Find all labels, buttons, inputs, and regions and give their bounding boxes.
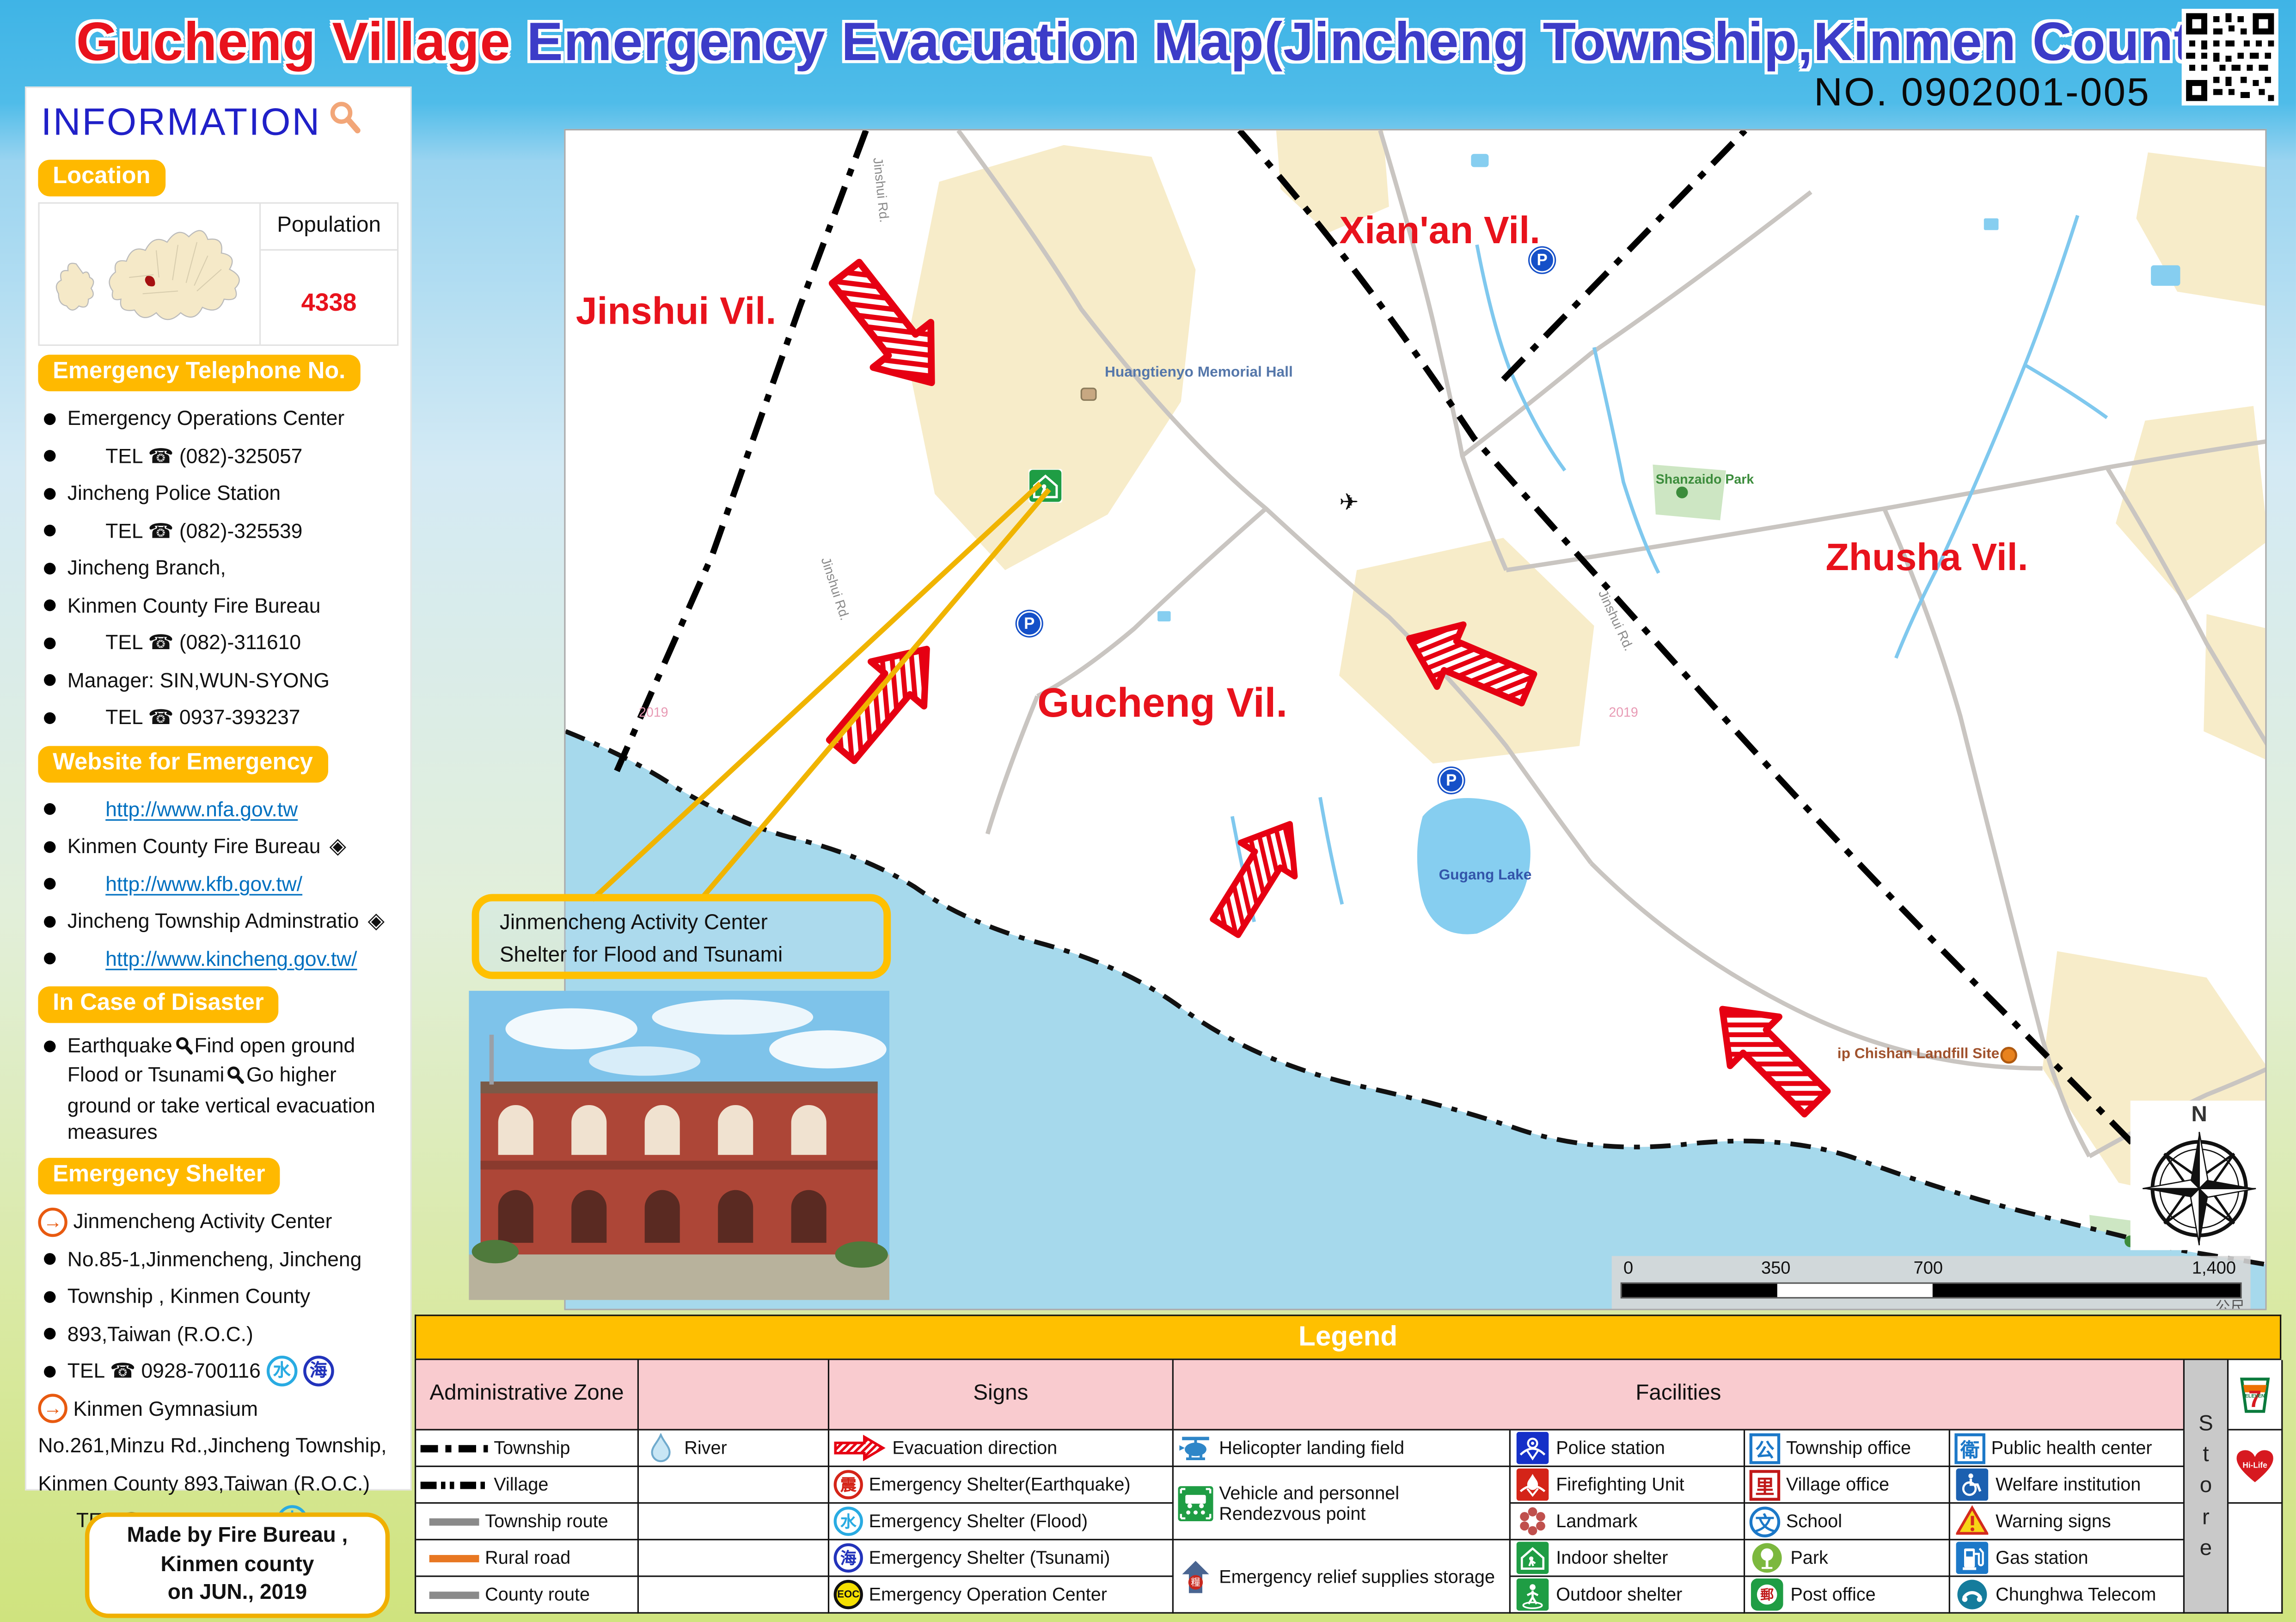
- location-badge: Location: [38, 160, 165, 196]
- arrow-circle-icon: →: [38, 1207, 67, 1236]
- magnifier-icon: [226, 1065, 245, 1092]
- magnifier-icon: [327, 100, 362, 145]
- website-list: http://www.nfa.gov.tw Kinmen County Fire…: [38, 791, 398, 977]
- legend-row-post-office: 郵 Post office: [1745, 1577, 1950, 1614]
- legend-row-eoc: EOC Emergency Operation Center: [829, 1577, 1174, 1614]
- document-number: NO. 0902001-005: [1814, 70, 2150, 116]
- scale-tick: 0: [1623, 1258, 1633, 1278]
- bullet-icon: [44, 953, 55, 965]
- tel-row: Kinmen County Fire Bureau: [38, 587, 398, 624]
- bullet-icon: [44, 600, 55, 611]
- bullet-icon: [44, 712, 55, 724]
- shelter-callout: Jinmencheng Activity Center Shelter for …: [472, 894, 891, 979]
- information-header-label: INFORMATION: [41, 100, 321, 145]
- legend-header-admin: Administrative Zone: [416, 1360, 639, 1430]
- location-box: Population 4338: [38, 202, 398, 346]
- shelter-row: Township , Kinmen County: [38, 1278, 398, 1315]
- population-label: Population: [261, 204, 397, 251]
- shelter-row: →Jinmencheng Activity Center: [38, 1203, 398, 1241]
- township-route-sample: [429, 1518, 479, 1525]
- police-station-icon: [1515, 1431, 1550, 1466]
- legend-row-county-route: County route: [416, 1577, 639, 1614]
- river-drop-icon: [643, 1431, 678, 1466]
- gas-station-icon: [1954, 1540, 1990, 1575]
- bullet-icon: [44, 1253, 55, 1265]
- website-row: http://www.kincheng.gov.tw/: [38, 940, 398, 977]
- legend-row-outdoor-shelter: Outdoor shelter: [1511, 1577, 1745, 1614]
- village-line-sample: [421, 1481, 488, 1488]
- disaster-text: EarthquakeFind open ground Flood or Tsun…: [67, 1032, 398, 1146]
- map-watermark: 2019: [1609, 705, 1638, 720]
- village-label-jinshui: Jinshui Vil.: [576, 289, 777, 334]
- scale-tick: 1,400: [2192, 1258, 2236, 1278]
- legend-row-township-office: 公 Township office: [1745, 1431, 1950, 1467]
- svg-text:7: 7: [2248, 1385, 2261, 1411]
- poi-label-landfill: ip Chishan Landfill Site: [1837, 1046, 1999, 1063]
- bullet-icon: [44, 562, 55, 574]
- bullet-icon: [44, 878, 55, 890]
- kfb-link[interactable]: http://www.kfb.gov.tw/: [67, 873, 302, 895]
- flood-shelter-icon: 水: [266, 1356, 297, 1387]
- shelter-photo: [469, 991, 889, 1300]
- page-title-rest: Emergency Evacuation Map(Jincheng Townsh…: [511, 12, 2242, 72]
- legend-row-police: Police station: [1511, 1431, 1745, 1467]
- scale-bar: 0 350 700 1,400 公尺: [1612, 1256, 2251, 1309]
- made-by-note: Made by Fire Bureau , Kinmen county on J…: [85, 1512, 390, 1618]
- tel-row: Jincheng Branch,: [38, 550, 398, 587]
- evacuation-arrow-icon: [834, 1431, 887, 1466]
- legend-header-facilities: Facilities: [1174, 1360, 2185, 1430]
- scale-bar-segments: [1621, 1282, 2242, 1298]
- warning-signs-icon: [1954, 1504, 1990, 1539]
- airfield-icon: ✈: [1339, 488, 1359, 517]
- legend: Legend Administrative Zone Signs Facilit…: [415, 1315, 2281, 1614]
- store-hilife-logo: Hi-Life: [2229, 1431, 2283, 1504]
- rendezvous-icon: [1178, 1485, 1213, 1520]
- legend-row-telecom: Chunghwa Telecom: [1950, 1577, 2185, 1614]
- store-empty-cell: [2229, 1504, 2283, 1614]
- supplies-storage-icon: 糧: [1178, 1559, 1213, 1594]
- legend-row-firefighting: Firefighting Unit: [1511, 1467, 1745, 1504]
- website-row: Jincheng Township Adminstratio◈: [38, 903, 398, 940]
- village-office-icon: 里: [1750, 1469, 1781, 1500]
- legend-table: Administrative Zone Signs Facilities S t…: [415, 1358, 2281, 1614]
- legend-row-village: Village: [416, 1467, 639, 1504]
- legend-row-helicopter: Helicopter landing field: [1174, 1431, 1511, 1467]
- tel-row: Emergency Operations Center: [38, 400, 398, 437]
- earthquake-shelter-icon: 震: [834, 1470, 863, 1499]
- shelter-row: Kinmen County 893,Taiwan (R.O.C.): [38, 1465, 398, 1502]
- map-watermark: 2019: [639, 705, 668, 720]
- eoc-icon: EOC: [834, 1580, 863, 1609]
- school-icon: 文: [1750, 1506, 1781, 1537]
- page-title: Gucheng Village Emergency Evacuation Map…: [76, 12, 2242, 73]
- flood-shelter-icon: 水: [834, 1506, 863, 1536]
- page-title-village: Gucheng Village: [76, 12, 511, 72]
- website-row: http://www.nfa.gov.tw: [38, 791, 398, 828]
- website-row: Kinmen County Fire Bureau◈: [38, 828, 398, 866]
- legend-row-shelter-earthquake: 震 Emergency Shelter(Earthquake): [829, 1467, 1174, 1504]
- legend-row-rendezvous: Vehicle and personnel Rendezvous point: [1174, 1467, 1511, 1540]
- bullet-icon: [44, 675, 55, 686]
- qr-diamond-icon: ◈: [329, 835, 346, 858]
- scale-tick: 700: [1914, 1258, 1943, 1278]
- legend-row-shelter-tsunami: 海 Emergency Shelter (Tsunami): [829, 1540, 1174, 1577]
- post-office-icon: 郵: [1750, 1577, 1785, 1612]
- population-value: 4338: [261, 289, 397, 318]
- bullet-icon: [44, 1290, 55, 1302]
- legend-row-supplies: 糧 Emergency relief supplies storage: [1174, 1540, 1511, 1613]
- telephone-list: Emergency Operations Center TEL ☎ (082)-…: [38, 400, 398, 736]
- tel-row: Jincheng Police Station: [38, 475, 398, 512]
- shelter-row: No.85-1,Jinmencheng, Jincheng: [38, 1241, 398, 1278]
- poi-label-park: Shanzaido Park: [1656, 472, 1754, 487]
- parking-icon: P: [1530, 248, 1555, 273]
- outdoor-shelter-icon: [1515, 1577, 1550, 1612]
- legend-row-health-center: 衛 Public health center: [1950, 1431, 2185, 1467]
- legend-header-blank: [639, 1360, 829, 1430]
- village-label-zhusha: Zhusha Vil.: [1825, 535, 2028, 580]
- telephone-badge: Emergency Telephone No.: [38, 355, 360, 391]
- village-label-xianan: Xian'an Vil.: [1339, 208, 1540, 253]
- arrow-circle-icon: →: [38, 1394, 67, 1423]
- bullet-icon: [44, 804, 55, 815]
- shelter-row: →Kinmen Gymnasium: [38, 1390, 398, 1427]
- tel-row: Manager: SIN,WUN-SYONG: [38, 662, 398, 699]
- rural-road-sample: [429, 1554, 479, 1561]
- bullet-icon: [44, 1365, 55, 1377]
- shelter-row: 893,Taiwan (R.O.C.): [38, 1315, 398, 1352]
- legend-row-river: River: [639, 1431, 829, 1467]
- legend-row-township: Township: [416, 1431, 639, 1467]
- qr-code-icon: [2182, 9, 2278, 105]
- website-badge: Website for Emergency: [38, 745, 327, 782]
- qr-diamond-icon: ◈: [367, 910, 385, 933]
- parking-icon: P: [1439, 768, 1464, 793]
- svg-text:ELEVEN: ELEVEN: [2245, 1393, 2265, 1398]
- scale-unit: 公尺: [2216, 1294, 2245, 1310]
- kinmen-island-map: [40, 204, 261, 344]
- disaster-badge: In Case of Disaster: [38, 986, 278, 1023]
- shelter-row: TEL ☎ 0928-700116 水 海: [38, 1352, 398, 1390]
- bullet-icon: [44, 488, 55, 499]
- magnifier-icon: [174, 1035, 193, 1062]
- tel-row: TEL ☎ 0937-393237: [38, 699, 398, 737]
- shelter-list: →Jinmencheng Activity Center No.85-1,Jin…: [38, 1203, 398, 1539]
- callout-line1: Jinmencheng Activity Center: [500, 907, 883, 940]
- township-line-sample: [421, 1444, 488, 1452]
- kincheng-link[interactable]: http://www.kincheng.gov.tw/: [67, 948, 357, 970]
- bullet-icon: [44, 450, 55, 462]
- village-label-gucheng: Gucheng Vil.: [1037, 680, 1287, 727]
- bullet-icon: [44, 413, 55, 424]
- helicopter-icon: [1178, 1431, 1213, 1466]
- legend-row-rural-road: Rural road: [416, 1540, 639, 1577]
- park-icon: [1750, 1540, 1785, 1575]
- county-route-sample: [429, 1591, 479, 1598]
- website-row: http://www.kfb.gov.tw/: [38, 866, 398, 903]
- township-office-icon: 公: [1750, 1432, 1781, 1463]
- parking-icon: P: [1017, 611, 1042, 636]
- health-center-icon: 衛: [1954, 1432, 1985, 1463]
- information-panel: INFORMATION Location Population 4338 Eme…: [26, 88, 410, 1489]
- firefighting-unit-icon: [1515, 1467, 1550, 1502]
- svg-text:Hi-Life: Hi-Life: [2243, 1460, 2267, 1469]
- bullet-icon: [44, 1040, 55, 1052]
- indoor-shelter-map-icon: [1029, 469, 1062, 503]
- landmark-icon: [1515, 1504, 1550, 1539]
- legend-row-village-office: 里 Village office: [1745, 1467, 1950, 1504]
- legend-row-indoor-shelter: Indoor shelter: [1511, 1540, 1745, 1577]
- legend-row-evac-direction: Evacuation direction: [829, 1431, 1174, 1467]
- welfare-institution-icon: [1954, 1467, 1990, 1502]
- compass-north-label: N: [2192, 1102, 2207, 1127]
- tel-row: TEL ☎ (082)-325539: [38, 512, 398, 550]
- legend-row-school: 文 School: [1745, 1504, 1950, 1540]
- tsunami-shelter-icon: 海: [303, 1356, 334, 1387]
- bullet-icon: [44, 915, 55, 927]
- scale-tick: 350: [1761, 1258, 1790, 1278]
- poster-canvas: Gucheng Village Emergency Evacuation Map…: [0, 0, 2296, 1622]
- chunghwa-telecom-icon: [1954, 1577, 1990, 1612]
- poi-label-lake: Gugang Lake: [1439, 867, 1532, 884]
- legend-row-landmark: Landmark: [1511, 1504, 1745, 1540]
- legend-row-township-route: Township route: [416, 1504, 639, 1540]
- store-column-label: S t o r e: [2185, 1360, 2229, 1613]
- legend-row-welfare: Welfare institution: [1950, 1467, 2185, 1504]
- shelter-row: No.261,Minzu Rd.,Jincheng Township,: [38, 1427, 398, 1465]
- indoor-shelter-icon: [1515, 1540, 1550, 1575]
- svg-text:糧: 糧: [1191, 1577, 1200, 1587]
- bullet-icon: [44, 1328, 55, 1339]
- legend-row-park: Park: [1745, 1540, 1950, 1577]
- shelter-badge: Emergency Shelter: [38, 1158, 280, 1194]
- bullet-icon: [44, 637, 55, 649]
- disaster-instructions: EarthquakeFind open ground Flood or Tsun…: [38, 1032, 398, 1146]
- nfa-link[interactable]: http://www.nfa.gov.tw: [67, 799, 298, 820]
- legend-title: Legend: [415, 1315, 2281, 1358]
- legend-row-shelter-flood: 水 Emergency Shelter (Flood): [829, 1504, 1174, 1540]
- legend-header-signs: Signs: [829, 1360, 1174, 1430]
- store-7eleven-logo: 7ELEVEN: [2229, 1360, 2283, 1430]
- tel-row: TEL ☎ (082)-325057: [38, 437, 398, 475]
- svg-text:郵: 郵: [1760, 1587, 1774, 1603]
- legend-row-warning: Warning signs: [1950, 1504, 2185, 1540]
- bullet-icon: [44, 525, 55, 537]
- tel-row: TEL ☎ (082)-311610: [38, 624, 398, 662]
- compass-rose: N: [2131, 1100, 2267, 1250]
- callout-line2: Shelter for Flood and Tsunami: [500, 940, 883, 973]
- poi-label-memorial: Huangtienyo Memorial Hall: [1105, 365, 1293, 381]
- tsunami-shelter-icon: 海: [834, 1543, 863, 1573]
- bullet-icon: [44, 841, 55, 853]
- legend-row-gas-station: Gas station: [1950, 1540, 2185, 1577]
- information-header: INFORMATION: [41, 100, 398, 145]
